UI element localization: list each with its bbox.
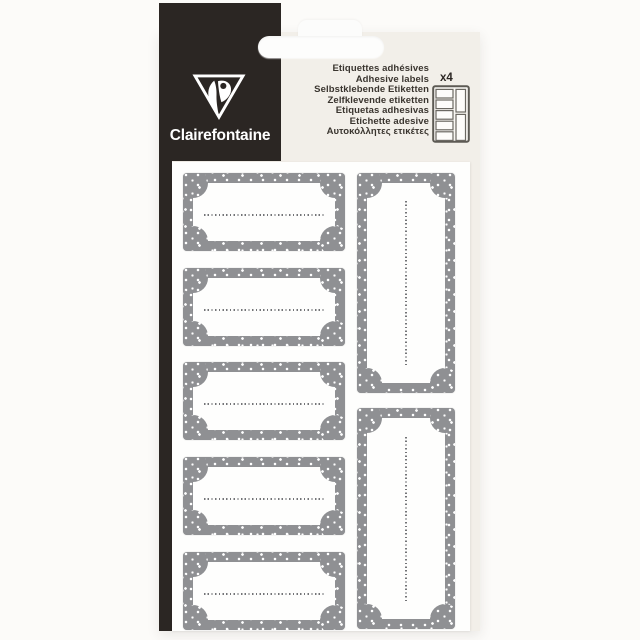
card-black-spine — [159, 160, 172, 631]
label-blank-area — [193, 278, 335, 336]
sticker-label-horizontal-1 — [183, 173, 345, 251]
writing-line — [204, 498, 324, 500]
label-blank-area — [193, 562, 335, 620]
sheet-count-diagram: x4 — [432, 72, 472, 148]
product-title-line-es: Etiquetas adhesivas — [314, 106, 429, 117]
label-corner — [320, 415, 345, 440]
sticker-label-horizontal-3 — [183, 362, 345, 440]
label-corner — [320, 510, 345, 535]
product-photo: Clairefontaine Etiquettes adhésives Adhe… — [0, 0, 640, 640]
label-corner — [320, 321, 345, 346]
sticker-label-horizontal-2 — [183, 268, 345, 346]
sticker-label-vertical-1 — [357, 173, 455, 393]
brand-name: Clairefontaine — [159, 127, 281, 145]
label-blank-area — [193, 183, 335, 241]
sticker-label-vertical-2 — [357, 408, 455, 629]
label-blank-area — [193, 372, 335, 430]
label-corner — [320, 226, 345, 251]
writing-line — [405, 437, 407, 601]
count-badge: x4 — [432, 72, 472, 85]
label-corner — [320, 605, 345, 630]
sticker-label-horizontal-5 — [183, 552, 345, 630]
label-blank-area — [193, 467, 335, 525]
sticker-label-horizontal-4 — [183, 457, 345, 535]
euro-slot-hole — [258, 36, 384, 58]
product-title-line-fr: Etiquettes adhésives — [314, 64, 429, 75]
product-title-list: Etiquettes adhésives Adhesive labels Sel… — [314, 64, 429, 138]
sheet-layout-diagram-icon — [432, 85, 470, 143]
label-corner — [430, 368, 455, 393]
writing-line — [405, 201, 407, 365]
writing-line — [204, 214, 324, 216]
product-title-line-el: Αυτοκόλλητες ετικέτες — [314, 127, 429, 138]
writing-line — [204, 309, 324, 311]
writing-line — [204, 403, 324, 405]
product-title-line-de: Selbstklebende Etiketten — [314, 85, 429, 96]
clairefontaine-logo-icon — [192, 73, 246, 121]
writing-line — [204, 593, 324, 595]
label-corner — [430, 604, 455, 629]
